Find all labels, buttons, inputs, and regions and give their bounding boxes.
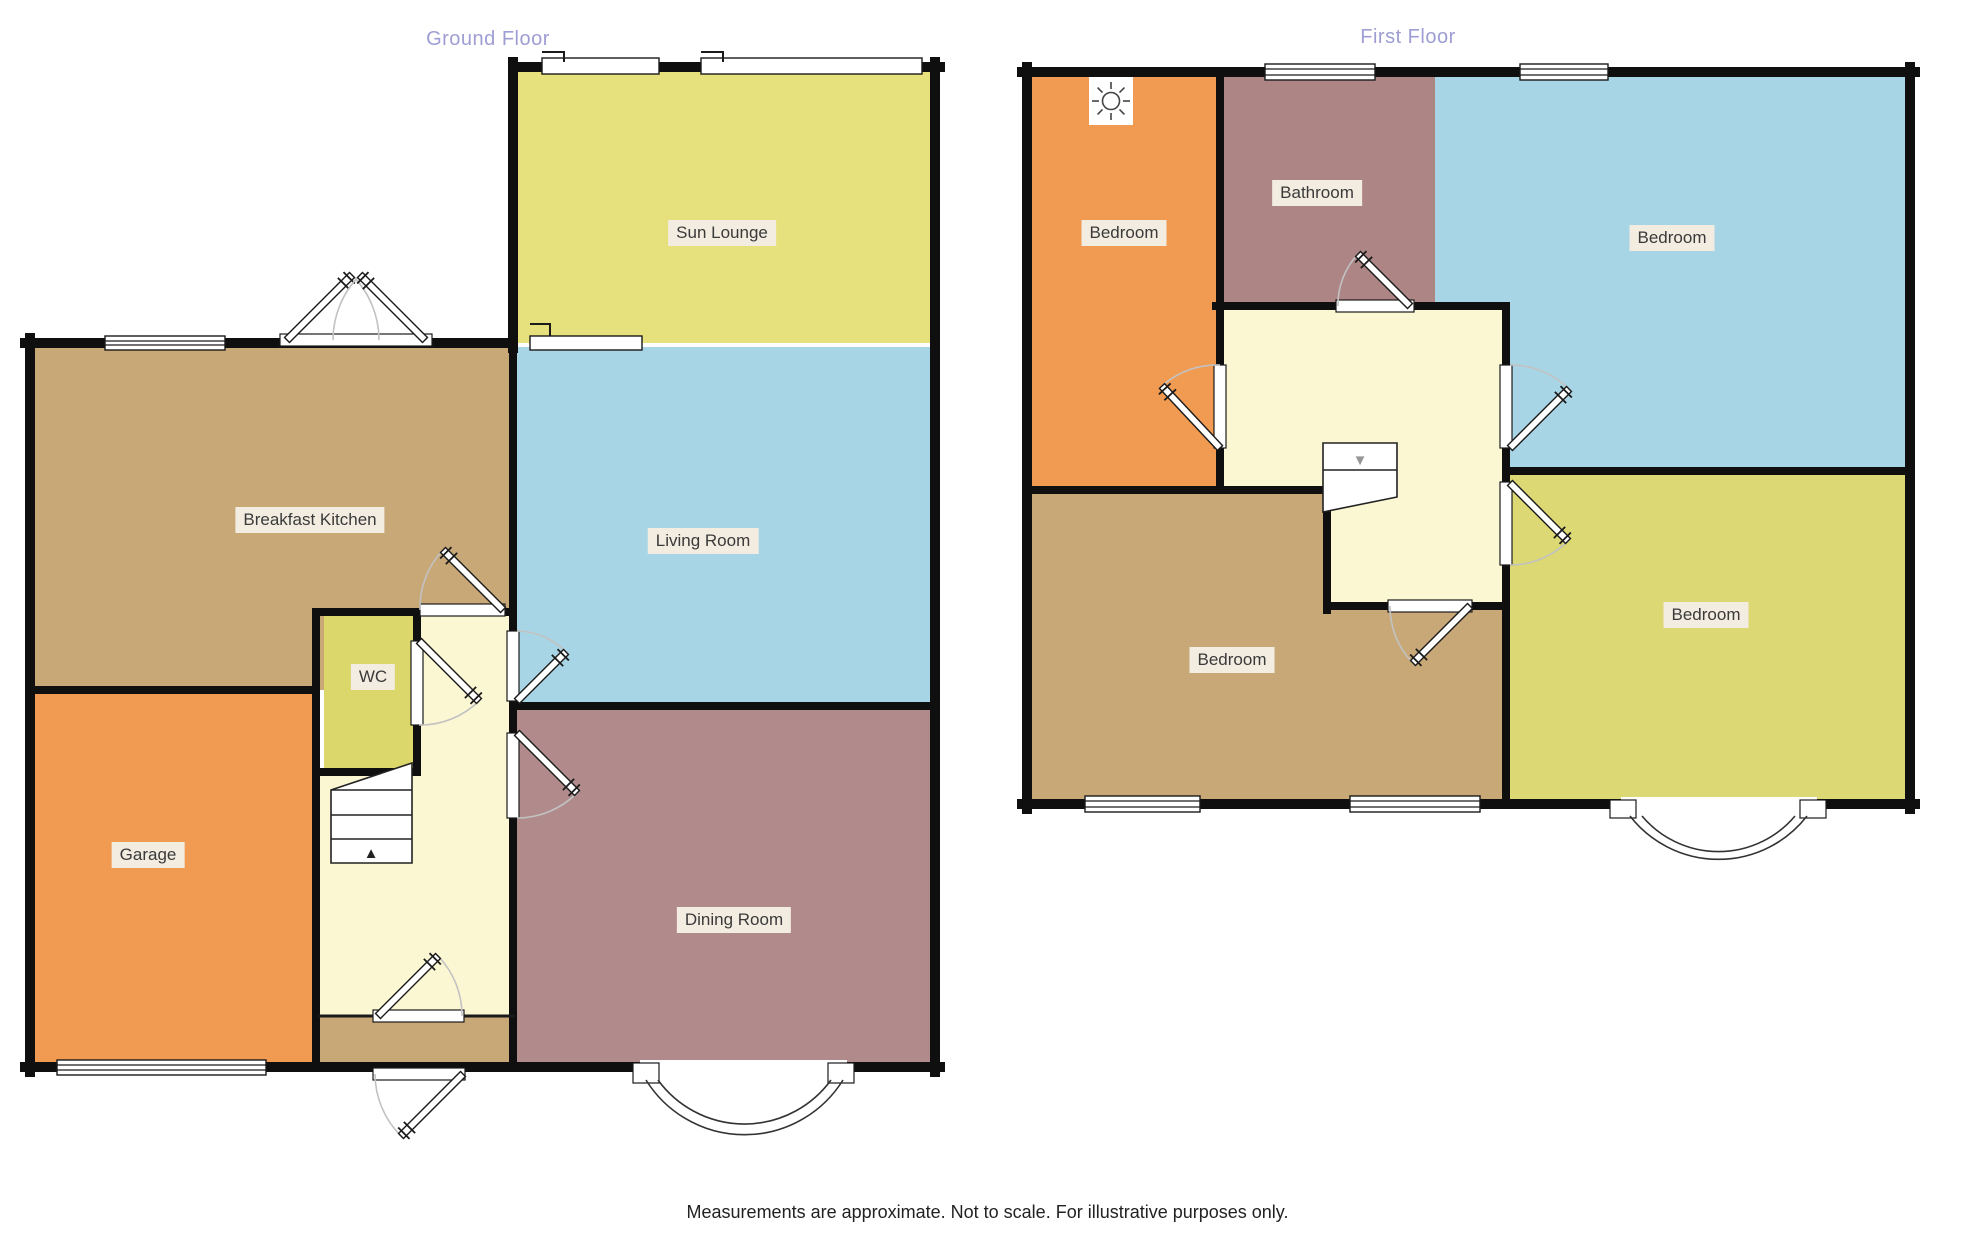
room-label-bedroom-front: Bedroom — [1082, 220, 1167, 246]
window — [105, 336, 225, 350]
door-opening — [1214, 365, 1226, 448]
bay-window — [633, 1060, 854, 1135]
first-floor-plan: ▼ — [1022, 64, 1915, 859]
room-bedroom-front — [1032, 77, 1216, 486]
window — [1265, 64, 1375, 80]
first-floor-rooms — [1032, 77, 1906, 800]
ground-floor-title: Ground Floor — [426, 28, 550, 51]
room-garage — [34, 694, 313, 1063]
stairs-up-arrow-icon: ▲ — [364, 845, 379, 862]
door-opening — [507, 631, 519, 701]
door-opening — [420, 604, 505, 616]
room-label-bathroom: Bathroom — [1272, 180, 1362, 206]
room-label-bedroom-back: Bedroom — [1190, 647, 1275, 673]
room-label-bedroom-large: Bedroom — [1630, 225, 1715, 251]
first-floor-title: First Floor — [1360, 26, 1456, 49]
room-label-garage: Garage — [112, 842, 185, 868]
door-opening — [1388, 600, 1472, 612]
room-label-breakfast-kitchen: Breakfast Kitchen — [235, 507, 384, 533]
window — [1520, 64, 1608, 80]
door-swing — [375, 1072, 465, 1139]
window — [542, 58, 659, 74]
door-opening — [507, 733, 519, 818]
disclaimer-text: Measurements are approximate. Not to sca… — [0, 1202, 1975, 1223]
room-label-bedroom-bay: Bedroom — [1664, 602, 1749, 628]
room-bedroom-back — [1032, 494, 1323, 800]
door-opening — [1500, 365, 1512, 448]
room-label-living-room: Living Room — [648, 528, 759, 554]
garage-door-window — [57, 1060, 266, 1075]
window — [1085, 796, 1200, 812]
window — [701, 58, 922, 74]
ground-floor-rooms — [34, 72, 931, 1063]
window — [1350, 796, 1480, 812]
door-opening — [411, 641, 423, 725]
room-living-room — [517, 347, 931, 706]
room-bedroom-back-ext — [1323, 610, 1502, 800]
room-vestibule — [320, 1016, 513, 1063]
room-label-sun-lounge: Sun Lounge — [668, 220, 776, 246]
floorplan-page: ▲ — [0, 0, 1975, 1250]
light-icon — [1089, 77, 1133, 125]
bay-window — [1610, 797, 1826, 859]
window — [530, 336, 642, 350]
stairs-down-arrow-icon: ▼ — [1353, 452, 1368, 469]
room-wc — [324, 616, 413, 768]
door-opening — [373, 1068, 465, 1080]
room-label-wc: WC — [351, 664, 395, 690]
room-bedroom-bay — [1510, 471, 1906, 800]
room-sun-lounge — [517, 72, 931, 343]
door-opening — [280, 334, 432, 346]
room-label-dining-room: Dining Room — [677, 907, 791, 933]
door-opening — [1500, 482, 1512, 565]
room-dining-room — [517, 710, 931, 1063]
